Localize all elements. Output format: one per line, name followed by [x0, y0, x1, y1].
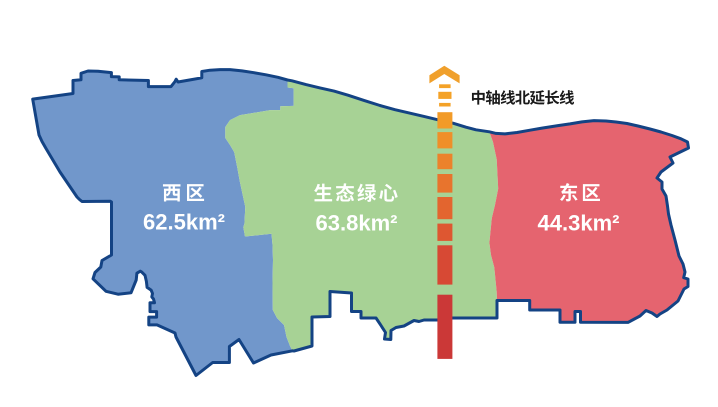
svg-text:44.3km²: 44.3km² — [538, 211, 620, 236]
svg-text:63.8km²: 63.8km² — [316, 210, 398, 235]
svg-text:62.5km²: 62.5km² — [143, 210, 225, 235]
